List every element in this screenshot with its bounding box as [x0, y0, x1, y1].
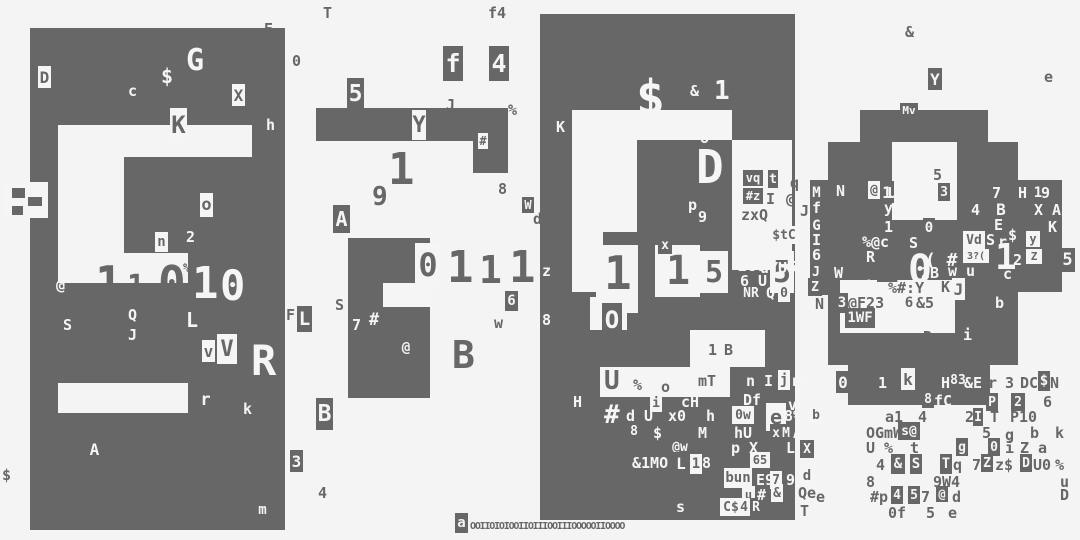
noise-char: W	[834, 266, 843, 281]
noise-char: z	[542, 264, 551, 279]
noise-char: d U	[626, 409, 653, 424]
char-tile: 5	[700, 251, 728, 293]
char-tile: f	[443, 46, 463, 81]
char-tile: T	[940, 454, 952, 474]
big-digit: 1	[192, 262, 219, 306]
noise-char: r	[988, 376, 997, 391]
char-tile: @	[868, 181, 880, 199]
noise-char: c	[128, 84, 137, 99]
noise-char: xQ	[750, 208, 768, 223]
noise-char: n	[746, 374, 755, 389]
noise-char: $	[653, 426, 662, 441]
noise-char: NoU	[734, 227, 761, 242]
noise-char: 8	[542, 313, 551, 328]
noise-char: 1	[878, 376, 887, 391]
noise-block	[252, 125, 285, 253]
char-tile: #	[366, 308, 382, 332]
noise-char: G	[186, 46, 204, 76]
noise-char: d	[952, 490, 961, 505]
noise-char: &1MO	[632, 456, 668, 471]
noise-char: T	[990, 410, 999, 425]
noise-block	[860, 110, 988, 142]
big-digit: 1	[352, 246, 380, 292]
char-tile: Y	[412, 110, 426, 140]
noise-char: r z	[723, 208, 750, 223]
noise-char: @	[56, 278, 65, 293]
noise-char: k	[243, 402, 252, 417]
noise-char: I	[766, 192, 775, 207]
char-tile: 3	[290, 450, 303, 472]
noise-char: ( #	[925, 252, 958, 270]
noise-char: B	[724, 343, 733, 358]
noise-char: 4	[876, 458, 885, 473]
noise-canvas: 1101011111111101DXKonvVLrA3mB5Y#A#@6Wf40…	[0, 0, 1080, 540]
noise-char: U0	[1033, 458, 1051, 473]
noise-char: s	[676, 500, 685, 515]
noise-char: 2	[965, 410, 974, 425]
big-digit: 1	[479, 251, 502, 289]
char-tile: L	[297, 306, 312, 332]
noise-char: $	[161, 66, 173, 86]
mosaic-bit	[12, 188, 25, 198]
char-tile: #z	[743, 188, 763, 204]
noise-char: 5	[788, 260, 797, 275]
noise-char: %	[183, 262, 190, 274]
char-tile: bun	[724, 468, 752, 488]
noise-char: i	[864, 280, 873, 295]
noise-char: A	[896, 311, 905, 326]
char-tile: v	[202, 340, 215, 362]
char-tile: k	[901, 368, 915, 390]
noise-char: e	[1044, 70, 1053, 85]
noise-char: 3	[795, 288, 804, 303]
noise-char: fC	[934, 394, 952, 409]
noise-char: 5	[933, 168, 942, 183]
noise-char: K	[941, 280, 950, 295]
noise-char: 9	[786, 473, 795, 488]
noise-char: 9	[372, 184, 388, 210]
noise-char: S	[335, 298, 344, 313]
noise-char: i	[963, 328, 972, 343]
char-tile: @	[398, 338, 414, 358]
noise-char: f	[812, 201, 821, 216]
noise-char: N	[815, 297, 824, 312]
char-tile: 6	[505, 291, 518, 311]
noise-char: E	[994, 218, 1003, 233]
char-tile: 0	[923, 218, 935, 238]
char-tile: Vd	[963, 231, 985, 249]
noise-char: w	[494, 316, 503, 331]
char-tile: y	[1026, 231, 1040, 247]
big-digit: 1	[385, 250, 407, 286]
noise-char: E	[264, 22, 273, 37]
noise-char: a1	[885, 410, 903, 425]
noise-char: 8	[498, 182, 507, 197]
noise-char: c	[1003, 267, 1012, 282]
noise-char: %#:Y	[888, 281, 924, 296]
noise-char: J	[800, 204, 809, 219]
big-digit: 1	[127, 272, 145, 302]
noise-char: t	[910, 441, 919, 456]
noise-char: &	[905, 25, 914, 40]
noise-char: 0f	[888, 506, 906, 521]
char-tile: $tC	[770, 226, 798, 244]
noise-char: R	[866, 250, 875, 265]
noise-char: %	[633, 378, 642, 393]
char-tile: S	[910, 454, 922, 474]
noise-char: e	[948, 506, 957, 521]
noise-char: T	[323, 6, 332, 21]
noise-char: 3	[1005, 376, 1014, 391]
char-tile: #	[478, 133, 488, 149]
char-tile: 0	[415, 243, 441, 287]
noise-char: &E	[964, 376, 982, 391]
noise-char: #	[757, 488, 766, 503]
char-tile: 1	[690, 454, 702, 474]
noise-char: 7	[921, 490, 930, 505]
white-patch	[892, 142, 957, 220]
mosaic-bit	[28, 197, 42, 206]
char-tile: 5	[347, 78, 364, 110]
char-tile: O	[602, 303, 622, 337]
noise-char: 1	[708, 343, 717, 358]
noise-char: p	[688, 198, 697, 213]
char-tile: Z	[1026, 249, 1042, 264]
big-digit: 0	[158, 260, 186, 306]
big-digit: 0	[220, 265, 245, 307]
noise-char: 4	[971, 203, 980, 218]
char-tile: m	[256, 500, 269, 520]
char-tile: t	[768, 170, 778, 188]
noise-char: 5	[982, 426, 991, 441]
char-tile: D	[38, 66, 51, 88]
noise-char: y	[884, 201, 893, 216]
noise-char: 6	[812, 248, 821, 263]
char-tile: b	[810, 406, 822, 424]
noise-char: 8%O	[784, 409, 811, 424]
char-tile: J	[952, 278, 965, 300]
noise-char: $	[2, 468, 11, 483]
noise-char: f4	[488, 6, 506, 21]
noise-char: Q	[128, 308, 137, 323]
char-tile: 5	[1060, 248, 1075, 272]
char-tile: 4	[891, 486, 903, 504]
char-tile: L	[674, 452, 688, 474]
char-tile: r	[199, 388, 212, 412]
noise-char: S	[986, 233, 995, 248]
noise-char: 2	[1013, 253, 1022, 268]
noise-char: 6 U	[740, 274, 767, 289]
noise-char: U %	[866, 441, 893, 456]
noise-char: h	[266, 118, 275, 133]
char-tile: X	[232, 84, 245, 106]
char-tile: V	[217, 334, 237, 364]
noise-char: a	[1038, 441, 1047, 456]
noise-char: D	[1060, 488, 1069, 503]
noise-char: Df	[743, 393, 761, 408]
char-tile: Z	[981, 454, 993, 472]
noise-char: J	[446, 98, 455, 113]
noise-char: t	[36, 374, 45, 389]
noise-char: q	[42, 406, 51, 421]
noise-char: 7	[352, 318, 361, 333]
char-tile: A	[333, 205, 350, 233]
noise-char: $	[1008, 228, 1017, 243]
char-tile: x	[658, 236, 672, 254]
noise-char: S	[63, 318, 72, 333]
noise-char: 7	[972, 458, 981, 473]
noise-char: H	[1018, 186, 1027, 201]
char-tile: Z	[808, 278, 822, 296]
noise-char: 5	[926, 506, 935, 521]
noise-char: p X	[731, 441, 758, 456]
noise-char: o	[661, 380, 670, 395]
char-tile: A	[88, 438, 101, 460]
noise-char: F	[286, 308, 295, 323]
noise-char: $	[636, 74, 665, 122]
noise-char: H	[941, 376, 950, 391]
noise-char: R	[923, 330, 932, 345]
noise-char: r	[998, 235, 1007, 250]
noise-char: D	[696, 144, 724, 190]
char-tile: 3	[938, 183, 950, 201]
char-tile: d	[800, 466, 814, 486]
big-digit: 1	[604, 250, 632, 296]
noise-char: 0	[292, 54, 301, 69]
noise-char: 2	[186, 230, 195, 245]
noise-block	[30, 28, 285, 125]
char-tile: 8	[922, 390, 934, 408]
noise-char: Z	[1020, 441, 1029, 456]
noise-char: #p	[870, 490, 888, 505]
noise-char: P10	[1010, 410, 1037, 425]
noise-char: q	[790, 176, 799, 191]
noise-char: 9	[698, 210, 707, 225]
char-tile: j	[778, 370, 790, 390]
noise-char: Qe	[798, 486, 816, 501]
char-tile: o	[200, 193, 213, 217]
noise-char: h	[706, 409, 715, 424]
noise-char: 9	[1041, 186, 1050, 201]
char-tile: 5	[908, 486, 920, 504]
big-digit: 1	[447, 246, 474, 290]
mosaic-bit	[12, 206, 23, 215]
char-tile: vq	[743, 170, 763, 186]
noise-char: z$	[995, 458, 1013, 473]
noise-char: o	[928, 186, 937, 201]
white-patch	[572, 140, 637, 232]
noise-char: Q	[766, 286, 775, 301]
char-tile: $	[1038, 371, 1050, 391]
noise-char: e	[816, 490, 825, 505]
noise-char: k	[1055, 426, 1064, 441]
char-tile: n	[155, 232, 168, 252]
noise-char: #	[604, 402, 620, 428]
noise-char: q	[953, 458, 962, 473]
noise-char: 4	[318, 486, 327, 501]
big-digit: 1	[250, 263, 274, 303]
noise-char: J	[128, 328, 137, 343]
char-tile: Y	[928, 68, 942, 90]
noise-char: i	[1005, 441, 1014, 456]
char-tile: 4	[489, 46, 509, 81]
noise-char: d	[533, 212, 542, 227]
noise-char: K	[1048, 220, 1057, 235]
noise-block	[30, 413, 285, 530]
noise-char: R	[251, 340, 276, 382]
char-tile: g	[956, 438, 968, 456]
char-tile: Mv	[900, 103, 918, 118]
char-tile: 0	[836, 371, 850, 393]
noise-char: 4	[918, 410, 927, 425]
noise-char: &5	[916, 296, 934, 311]
noise-char: I	[764, 374, 773, 389]
noise-char: %	[508, 103, 517, 118]
char-tile: 4	[738, 498, 750, 516]
noise-char: X A	[1034, 203, 1061, 218]
noise-char: DC	[1020, 376, 1038, 391]
char-tile: B	[316, 398, 333, 430]
noise-char: @F23	[848, 296, 884, 311]
noise-char: K	[556, 120, 565, 135]
noise-char: 7	[992, 186, 1001, 201]
noise-char: Au6	[793, 426, 820, 441]
noise-char: K5	[906, 201, 924, 216]
big-digit: 1	[666, 251, 690, 291]
noise-char: L	[186, 310, 198, 330]
noise-char: T	[800, 504, 809, 519]
char-tile: K	[170, 108, 187, 142]
noise-char: M	[698, 426, 707, 441]
binary-strip: OOIIOIOIOOIIOIIIOOIIIOOOOOIIOOOO	[470, 522, 624, 532]
noise-char: 1	[714, 78, 730, 104]
noise-char: b	[995, 296, 1004, 311]
noise-char: N	[1050, 376, 1059, 391]
noise-char: U	[604, 368, 620, 394]
noise-char: 8	[702, 456, 711, 471]
noise-char: x0	[668, 409, 686, 424]
noise-char: 6	[1043, 395, 1052, 410]
noise-char: %	[1055, 458, 1064, 473]
char-tile: X	[800, 440, 814, 458]
noise-char: @	[786, 192, 795, 207]
noise-char: L	[786, 441, 795, 456]
noise-char: s	[796, 249, 805, 264]
noise-char: N	[836, 184, 845, 199]
noise-char: rd	[791, 374, 809, 389]
char-tile: &	[891, 454, 905, 474]
noise-char: &	[690, 84, 699, 99]
char-tile: 3?(	[963, 249, 989, 263]
noise-char: H	[573, 395, 582, 410]
noise-char: mT	[698, 374, 716, 389]
noise-char: S	[909, 236, 918, 251]
char-tile: a	[455, 513, 468, 533]
big-digit: 1	[509, 246, 536, 290]
big-digit: 1	[95, 260, 123, 306]
noise-char: 1	[388, 148, 415, 192]
noise-char: B	[452, 336, 475, 374]
char-tile: 0	[778, 284, 790, 302]
